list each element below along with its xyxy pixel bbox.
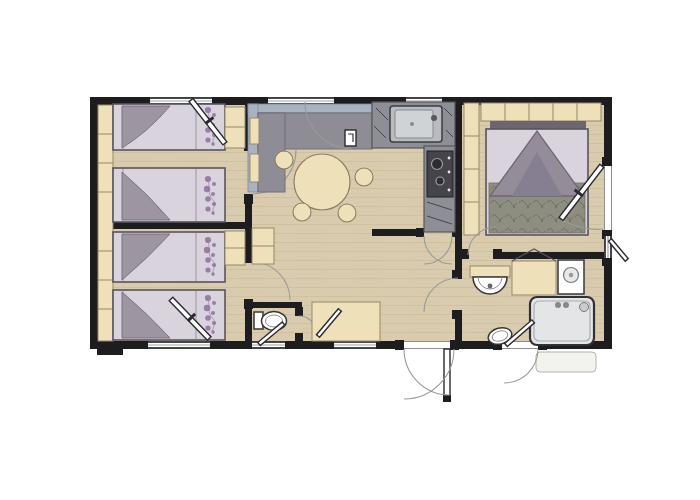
corner-cabinet	[225, 107, 245, 148]
twin-bed-4	[113, 290, 225, 340]
shower	[530, 297, 594, 345]
window-bedroom2-bottom	[148, 342, 210, 348]
floor-plan: Twin bedroom 1 Twin bedroom 2	[0, 0, 700, 500]
cooktop	[427, 151, 453, 197]
overhead-wardrobes	[481, 103, 601, 121]
double-bed	[486, 121, 588, 235]
stool	[275, 151, 293, 169]
window-living-top	[268, 98, 334, 104]
master-door-opening	[605, 166, 612, 230]
floor-plan-canvas: Twin bedroom 1 Twin bedroom 2	[0, 0, 700, 500]
stool	[355, 168, 373, 186]
tow-hitch	[97, 349, 123, 355]
twin-bed-2	[113, 168, 225, 222]
entrance-door-opening	[404, 342, 450, 349]
twin-bed-3	[113, 232, 225, 282]
window-wc-bottom	[252, 342, 285, 348]
window-hall-bottom	[334, 342, 376, 348]
tall-wardrobe	[464, 103, 479, 235]
stool	[293, 203, 311, 221]
wardrobe-column	[98, 105, 113, 341]
corner-cabinet	[225, 231, 245, 265]
dining-table	[294, 154, 350, 210]
corridor-cabinet	[252, 228, 274, 264]
patio-door-leaf	[345, 130, 356, 146]
kitchen-sink	[390, 106, 442, 142]
stool	[338, 204, 356, 222]
water-heater	[558, 260, 584, 294]
storage-closet	[312, 302, 380, 341]
exterior-step	[536, 352, 596, 372]
